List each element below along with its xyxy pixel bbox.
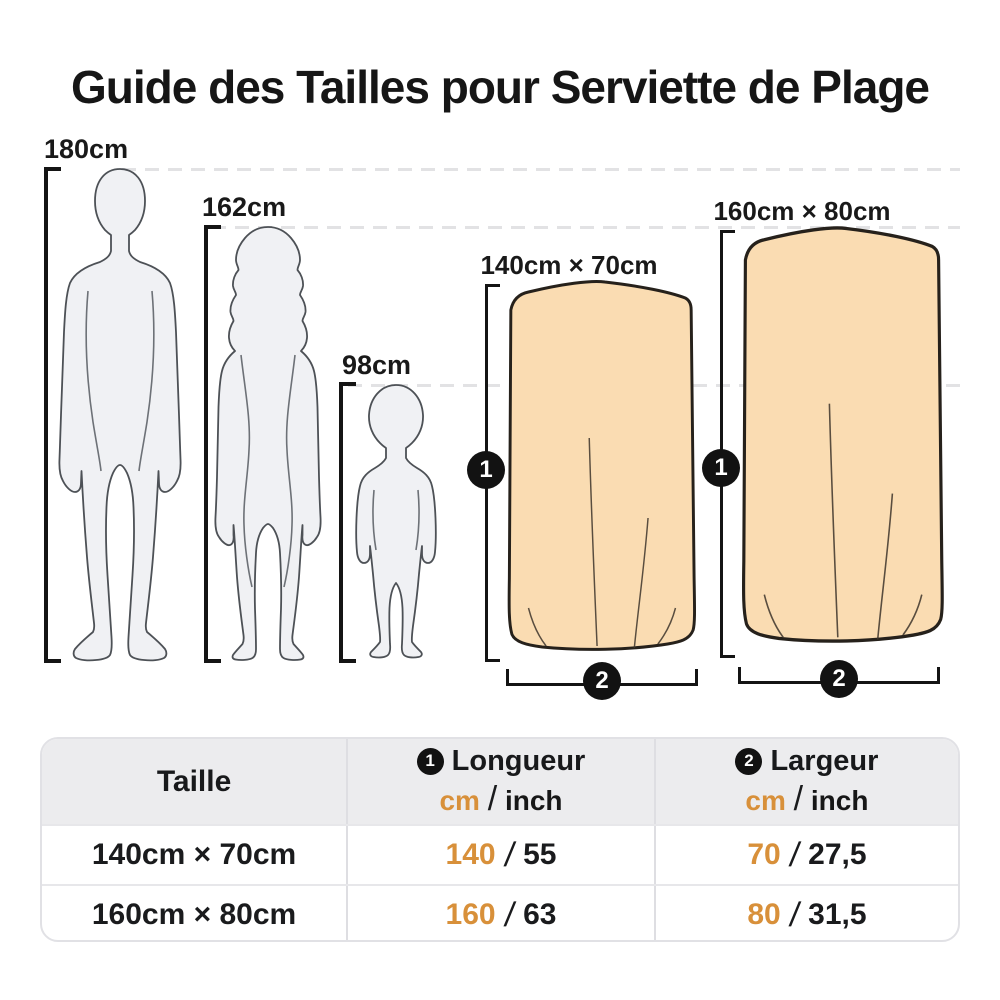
row2-largeur-separator: /: [787, 896, 802, 935]
row2-largeur-cm: 80: [747, 898, 780, 932]
woman-height-label: 162cm: [202, 192, 286, 223]
row2-longueur-inch: 63: [523, 898, 556, 932]
row2-longueur-separator: /: [502, 896, 517, 935]
row2-taille: 160cm × 80cm: [92, 898, 296, 932]
row2-longueur-cm: 160: [446, 898, 496, 932]
header-cell-largeur: 2 Largeur cm / inch: [654, 739, 958, 824]
row1-cell-largeur: 70 / 27,5: [654, 826, 958, 884]
longueur-header-label: Longueur: [452, 745, 586, 778]
towel-large-illustration: [737, 224, 947, 662]
width-badge-large: 2: [820, 660, 858, 698]
header-cell-longueur: 1 Longueur cm / inch: [346, 739, 654, 824]
taille-header-label: Taille: [157, 765, 231, 799]
child-height-label: 98cm: [342, 350, 411, 381]
woman-silhouette: [206, 225, 330, 663]
width-badge-small: 2: [583, 662, 621, 700]
towel-small-size-label: 140cm × 70cm: [459, 250, 679, 281]
row2-cell-longueur: 160 / 63: [346, 886, 654, 942]
row2-largeur-inch: 31,5: [808, 898, 866, 932]
row1-largeur-separator: /: [787, 836, 802, 875]
table-row: 160cm × 80cm 160 / 63 80 / 31,5: [42, 884, 958, 942]
size-table: Taille 1 Longueur cm / inch 2 Largeur: [40, 737, 960, 942]
child-silhouette: [344, 382, 448, 663]
row1-largeur-cm: 70: [747, 838, 780, 872]
row2-cell-largeur: 80 / 31,5: [654, 886, 958, 942]
man-silhouette: [54, 167, 186, 663]
largeur-unit-cm: cm: [745, 785, 785, 816]
size-guide-infographic: Guide des Tailles pour Serviette de Plag…: [0, 0, 1000, 1000]
dashed-line-180cm: [122, 168, 960, 171]
length-badge-small: 1: [467, 451, 505, 489]
longueur-badge: 1: [417, 748, 444, 775]
row1-cell-taille: 140cm × 70cm: [42, 826, 346, 884]
page-title: Guide des Tailles pour Serviette de Plag…: [0, 60, 1000, 114]
man-height-label: 180cm: [44, 134, 128, 165]
largeur-unit-inch: inch: [811, 785, 869, 816]
row1-longueur-inch: 55: [523, 838, 556, 872]
size-table-header: Taille 1 Longueur cm / inch 2 Largeur: [42, 739, 958, 824]
towel-large-size-label: 160cm × 80cm: [692, 196, 912, 227]
length-badge-large: 1: [702, 449, 740, 487]
row1-cell-longueur: 140 / 55: [346, 826, 654, 884]
largeur-unit-separator: /: [794, 780, 803, 818]
row2-cell-taille: 160cm × 80cm: [42, 886, 346, 942]
longueur-unit-inch: inch: [505, 785, 563, 816]
row1-longueur-cm: 140: [446, 838, 496, 872]
row1-taille: 140cm × 70cm: [92, 838, 296, 872]
largeur-header-label: Largeur: [770, 745, 878, 778]
row1-largeur-inch: 27,5: [808, 838, 866, 872]
largeur-badge: 2: [735, 748, 762, 775]
longueur-unit-separator: /: [488, 780, 497, 818]
longueur-unit-cm: cm: [439, 785, 479, 816]
towel-large-length-line: [720, 230, 738, 658]
table-row: 140cm × 70cm 140 / 55 70 / 27,5: [42, 824, 958, 884]
row1-longueur-separator: /: [502, 836, 517, 875]
towel-small-illustration: [503, 278, 699, 668]
header-cell-taille: Taille: [42, 739, 346, 824]
